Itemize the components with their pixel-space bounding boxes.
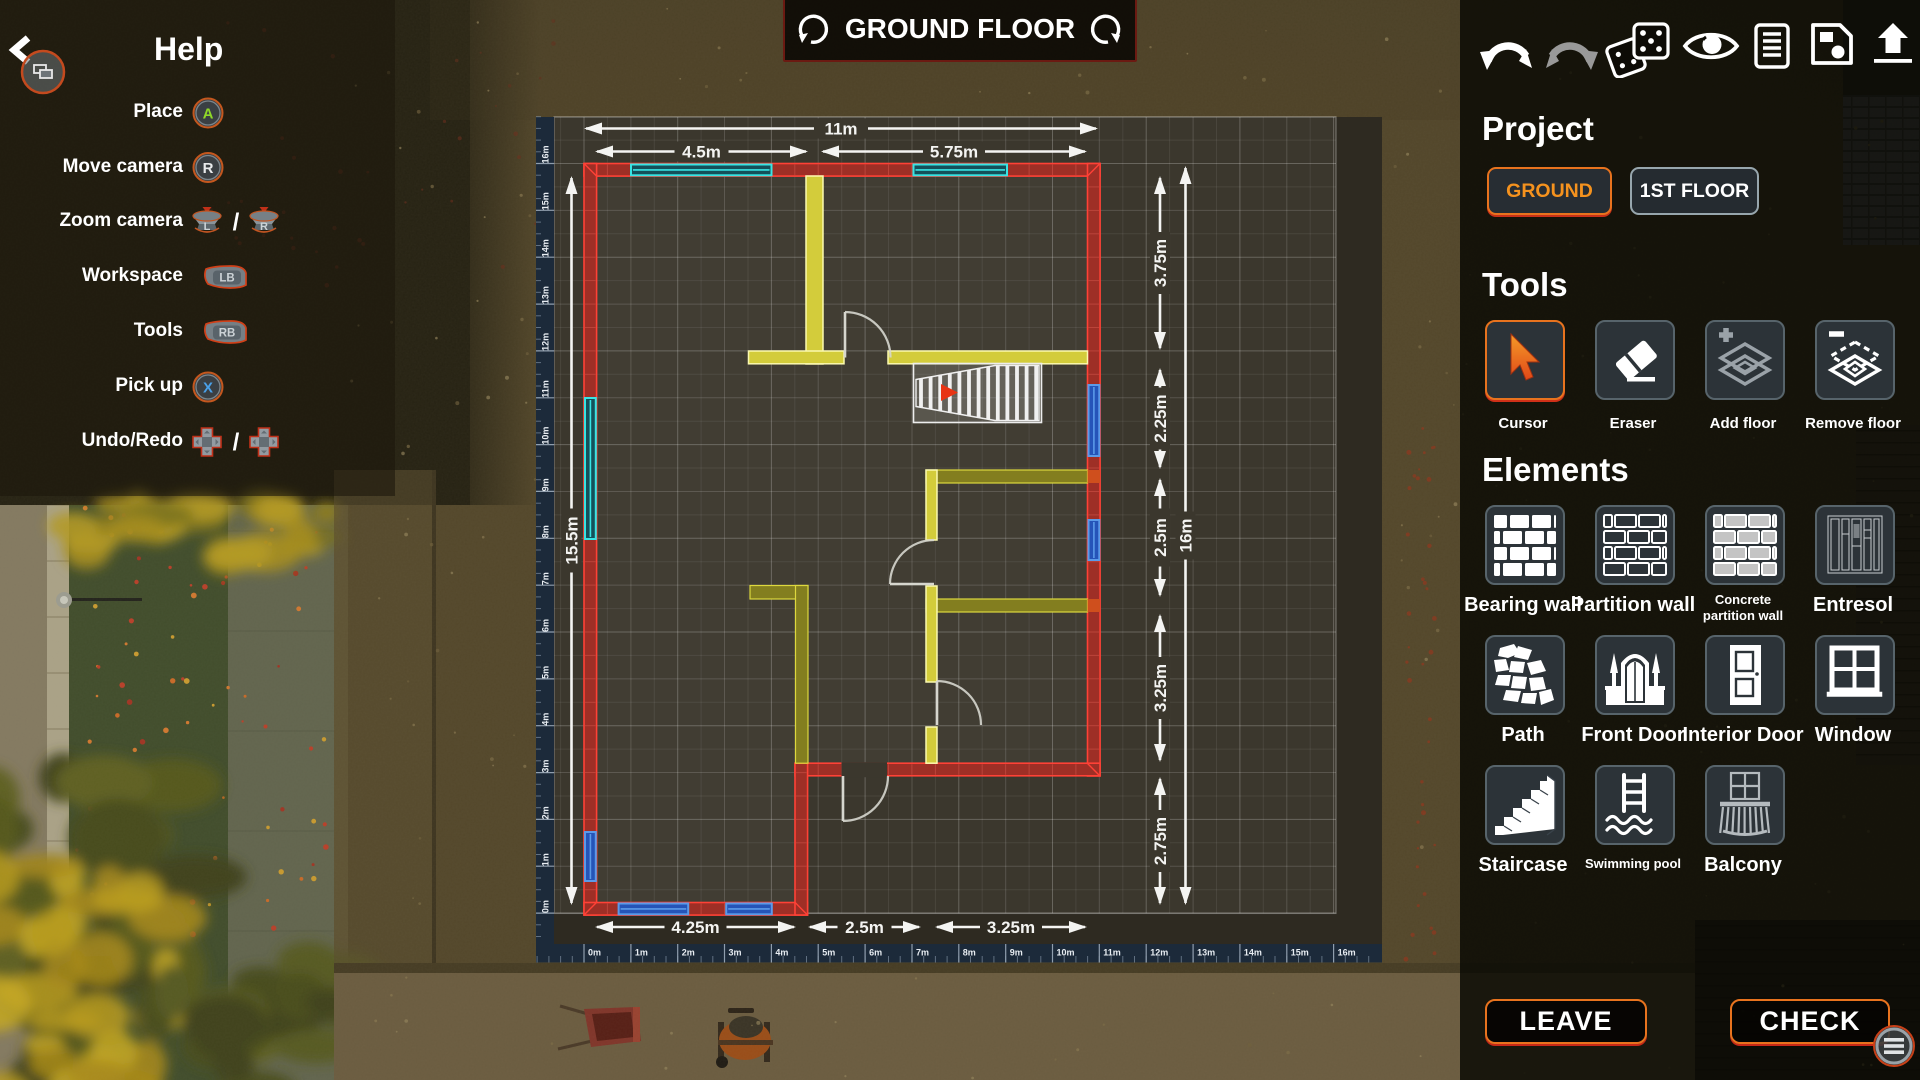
svg-text:16m: 16m <box>1177 518 1196 552</box>
svg-text:2m: 2m <box>541 806 551 819</box>
svg-text:/: / <box>233 429 240 456</box>
svg-text:5m: 5m <box>822 948 835 958</box>
svg-text:13m: 13m <box>1197 948 1215 958</box>
svg-text:/: / <box>233 209 240 236</box>
svg-text:7m: 7m <box>916 948 929 958</box>
svg-text:2.25m: 2.25m <box>1151 394 1170 442</box>
svg-text:R: R <box>260 221 268 233</box>
svg-text:4.5m: 4.5m <box>682 143 721 162</box>
svg-text:4m: 4m <box>541 713 551 726</box>
svg-text:2.5m: 2.5m <box>1151 518 1170 557</box>
svg-text:6m: 6m <box>869 948 882 958</box>
svg-text:L: L <box>204 221 211 233</box>
svg-text:15.5m: 15.5m <box>563 516 582 564</box>
svg-text:11m: 11m <box>824 120 857 139</box>
svg-text:9m: 9m <box>1010 948 1023 958</box>
svg-text:3.25m: 3.25m <box>1151 664 1170 712</box>
svg-text:14m: 14m <box>541 239 551 257</box>
svg-text:4m: 4m <box>775 948 788 958</box>
svg-text:4.25m: 4.25m <box>671 918 719 937</box>
svg-text:15m: 15m <box>1291 948 1309 958</box>
svg-text:RB: RB <box>219 328 236 340</box>
svg-text:LB: LB <box>219 273 234 285</box>
svg-text:13m: 13m <box>541 286 551 304</box>
svg-text:11m: 11m <box>1103 948 1121 958</box>
svg-text:7m: 7m <box>541 572 551 585</box>
svg-text:3.25m: 3.25m <box>987 918 1035 937</box>
svg-text:16m: 16m <box>1338 948 1356 958</box>
svg-text:5.75m: 5.75m <box>930 143 978 162</box>
svg-text:10m: 10m <box>1057 948 1075 958</box>
svg-text:1m: 1m <box>635 948 648 958</box>
svg-text:16m: 16m <box>541 145 551 163</box>
svg-text:9m: 9m <box>541 478 551 491</box>
svg-text:15m: 15m <box>541 192 551 210</box>
svg-text:1m: 1m <box>541 853 551 866</box>
svg-text:X: X <box>203 380 213 397</box>
svg-text:8m: 8m <box>541 525 551 538</box>
svg-text:6m: 6m <box>541 619 551 632</box>
svg-text:3.75m: 3.75m <box>1151 239 1170 287</box>
svg-text:0m: 0m <box>541 900 551 913</box>
svg-text:14m: 14m <box>1244 948 1262 958</box>
svg-text:10m: 10m <box>541 427 551 445</box>
svg-text:3m: 3m <box>541 760 551 773</box>
svg-text:12m: 12m <box>541 333 551 351</box>
svg-text:A: A <box>203 106 214 123</box>
svg-text:R: R <box>203 160 214 177</box>
svg-text:12m: 12m <box>1150 948 1168 958</box>
svg-text:3m: 3m <box>729 948 742 958</box>
svg-text:2.5m: 2.5m <box>845 918 884 937</box>
svg-text:2.75m: 2.75m <box>1151 817 1170 865</box>
svg-text:0m: 0m <box>588 948 601 958</box>
svg-text:8m: 8m <box>963 948 976 958</box>
svg-text:11m: 11m <box>541 380 551 398</box>
svg-text:2m: 2m <box>682 948 695 958</box>
svg-text:5m: 5m <box>541 666 551 679</box>
